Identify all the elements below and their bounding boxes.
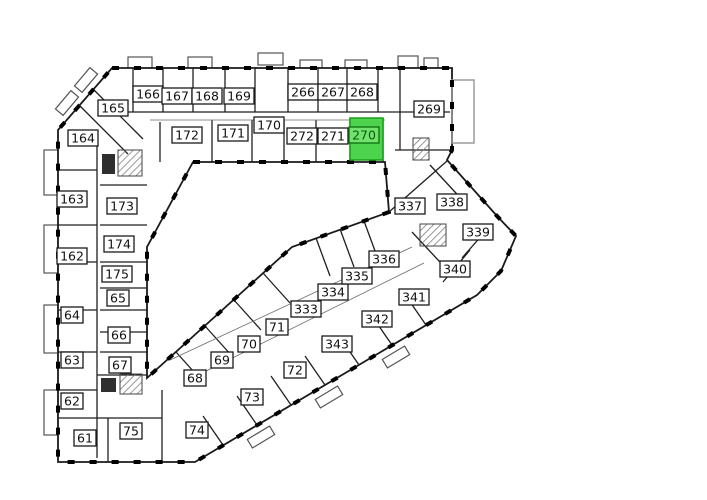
room-label-75[interactable]: 75 <box>120 423 142 439</box>
svg-text:337: 337 <box>398 199 422 214</box>
svg-text:163: 163 <box>60 192 84 207</box>
svg-text:173: 173 <box>110 199 134 214</box>
svg-text:63: 63 <box>64 353 80 368</box>
svg-text:70: 70 <box>241 337 257 352</box>
room-label-72[interactable]: 72 <box>284 362 306 378</box>
room-label-340[interactable]: 340 <box>440 261 470 277</box>
room-label-168[interactable]: 168 <box>192 88 222 104</box>
room-label-74[interactable]: 74 <box>186 422 208 438</box>
svg-text:62: 62 <box>64 394 80 409</box>
terrace-outline <box>452 80 474 143</box>
room-label-163[interactable]: 163 <box>57 191 87 207</box>
room-label-170[interactable]: 170 <box>254 117 284 133</box>
room-label-268[interactable]: 268 <box>347 84 377 100</box>
svg-text:267: 267 <box>321 85 345 100</box>
room-label-335[interactable]: 335 <box>342 268 372 284</box>
room-label-336[interactable]: 336 <box>369 251 399 267</box>
floor-plan-svg: 1661671681692662672681651721711702722712… <box>0 0 707 500</box>
svg-text:68: 68 <box>187 371 203 386</box>
room-label-339[interactable]: 339 <box>463 224 493 240</box>
svg-text:175: 175 <box>105 267 129 282</box>
svg-text:340: 340 <box>443 262 467 277</box>
svg-text:71: 71 <box>269 320 285 335</box>
room-label-65[interactable]: 65 <box>107 290 129 306</box>
room-label-169[interactable]: 169 <box>224 88 254 104</box>
svg-text:164: 164 <box>71 131 95 146</box>
svg-text:339: 339 <box>466 225 490 240</box>
svg-text:335: 335 <box>345 269 369 284</box>
svg-text:338: 338 <box>440 195 464 210</box>
svg-text:169: 169 <box>227 89 251 104</box>
room-label-333[interactable]: 333 <box>291 301 321 317</box>
svg-text:270: 270 <box>352 128 376 143</box>
svg-text:271: 271 <box>321 129 345 144</box>
room-label-172[interactable]: 172 <box>172 127 202 143</box>
svg-text:166: 166 <box>136 87 160 102</box>
svg-text:67: 67 <box>112 358 128 373</box>
room-label-338[interactable]: 338 <box>437 194 467 210</box>
room-label-167[interactable]: 167 <box>162 88 192 104</box>
elevator-block <box>102 154 115 174</box>
svg-text:174: 174 <box>107 237 131 252</box>
room-label-70[interactable]: 70 <box>238 336 260 352</box>
svg-text:172: 172 <box>175 128 199 143</box>
room-label-164[interactable]: 164 <box>68 130 98 146</box>
room-label-69[interactable]: 69 <box>211 352 233 368</box>
room-label-62[interactable]: 62 <box>61 393 83 409</box>
room-label-61[interactable]: 61 <box>74 430 96 446</box>
room-label-343[interactable]: 343 <box>322 336 352 352</box>
svg-text:342: 342 <box>365 312 389 327</box>
svg-text:272: 272 <box>290 129 314 144</box>
svg-text:165: 165 <box>101 101 125 116</box>
svg-text:343: 343 <box>325 337 349 352</box>
svg-text:167: 167 <box>165 89 189 104</box>
svg-text:334: 334 <box>321 285 345 300</box>
room-label-270[interactable]: 270 <box>349 127 379 143</box>
room-label-173[interactable]: 173 <box>107 198 137 214</box>
svg-text:171: 171 <box>221 126 245 141</box>
room-label-175[interactable]: 175 <box>102 266 132 282</box>
room-label-68[interactable]: 68 <box>184 370 206 386</box>
room-label-267[interactable]: 267 <box>318 84 348 100</box>
room-label-63[interactable]: 63 <box>61 352 83 368</box>
svg-text:162: 162 <box>60 249 84 264</box>
svg-text:61: 61 <box>77 431 93 446</box>
room-label-341[interactable]: 341 <box>399 289 429 305</box>
svg-text:266: 266 <box>291 85 315 100</box>
room-label-269[interactable]: 269 <box>414 101 444 117</box>
room-label-166[interactable]: 166 <box>133 86 163 102</box>
room-label-337[interactable]: 337 <box>395 198 425 214</box>
svg-text:336: 336 <box>372 252 396 267</box>
room-label-162[interactable]: 162 <box>57 248 87 264</box>
svg-text:66: 66 <box>111 328 127 343</box>
room-label-73[interactable]: 73 <box>241 389 263 405</box>
svg-text:65: 65 <box>110 291 126 306</box>
room-label-266[interactable]: 266 <box>288 84 318 100</box>
svg-text:72: 72 <box>287 363 303 378</box>
room-label-165[interactable]: 165 <box>98 100 128 116</box>
svg-text:73: 73 <box>244 390 260 405</box>
room-label-67[interactable]: 67 <box>109 357 131 373</box>
elevator-block <box>101 378 116 392</box>
svg-text:269: 269 <box>417 102 441 117</box>
floor-plan-canvas: 1661671681692662672681651721711702722712… <box>0 0 707 500</box>
room-label-271[interactable]: 271 <box>318 128 348 144</box>
svg-text:64: 64 <box>64 308 80 323</box>
svg-text:75: 75 <box>123 424 139 439</box>
room-label-71[interactable]: 71 <box>266 319 288 335</box>
svg-text:170: 170 <box>257 118 281 133</box>
room-label-174[interactable]: 174 <box>104 236 134 252</box>
svg-text:168: 168 <box>195 89 219 104</box>
svg-text:69: 69 <box>214 353 230 368</box>
room-label-64[interactable]: 64 <box>61 307 83 323</box>
room-label-171[interactable]: 171 <box>218 125 248 141</box>
room-label-272[interactable]: 272 <box>287 128 317 144</box>
room-label-66[interactable]: 66 <box>108 327 130 343</box>
svg-text:333: 333 <box>294 302 318 317</box>
svg-text:74: 74 <box>189 423 205 438</box>
svg-text:268: 268 <box>350 85 374 100</box>
room-label-334[interactable]: 334 <box>318 284 348 300</box>
room-label-342[interactable]: 342 <box>362 311 392 327</box>
svg-text:341: 341 <box>402 290 426 305</box>
